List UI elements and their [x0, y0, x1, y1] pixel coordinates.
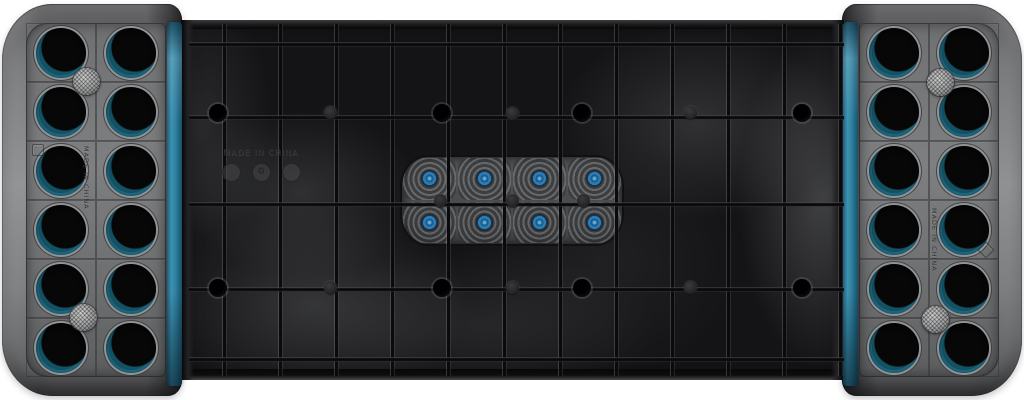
riser-socket: [939, 146, 989, 196]
rib-junction-nub: [506, 107, 519, 120]
screw-hole: [793, 279, 811, 297]
riser-socket: [106, 323, 156, 373]
riser-socket: [106, 264, 156, 314]
knurled-plug: [922, 306, 949, 333]
rib-junction-nub: [506, 194, 519, 207]
socket-cell: [96, 318, 166, 377]
teal-accent-stripe-left: [167, 22, 182, 386]
riser-socket: [869, 87, 919, 137]
screw-hole: [573, 104, 591, 122]
rib-junction-nub: [684, 281, 697, 294]
screw-hole: [433, 279, 451, 297]
origin-marking-block: MADE IN CHINA ♻: [215, 148, 307, 182]
riser-socket: [939, 264, 989, 314]
certification-stamp-row: ♻: [215, 163, 307, 182]
riser-socket: [106, 146, 156, 196]
riser-socket: [106, 205, 156, 255]
embossed-origin-text-center: MADE IN CHINA: [215, 148, 307, 157]
socket-cell: [96, 23, 166, 82]
rib-horizontal: [189, 357, 844, 362]
aerobic-step-underside-photo: MADE IN CHINA: [0, 0, 1024, 400]
socket-cell: [96, 141, 166, 200]
riser-socket: [869, 323, 919, 373]
socket-cell: [859, 200, 929, 259]
socket-cell: [96, 259, 166, 318]
riser-socket: [869, 28, 919, 78]
certification-stamp: [222, 163, 241, 182]
rib-junction-nub: [506, 281, 519, 294]
knurled-plug: [73, 68, 100, 95]
rib-junction-nub: [577, 194, 590, 207]
certification-stamp: [282, 163, 301, 182]
main-body-underside: MADE IN CHINA ♻: [181, 20, 844, 380]
riser-socket: [106, 87, 156, 137]
rib-junction-nub: [324, 106, 337, 119]
riser-socket: [869, 205, 919, 255]
socket-cell: [96, 82, 166, 141]
socket-cell: [859, 23, 929, 82]
embossed-origin-text-left: MADE IN CHINA: [82, 146, 90, 210]
screw-hole: [793, 104, 811, 122]
socket-cell: [859, 318, 929, 377]
socket-cell: [929, 141, 999, 200]
riser-socket: [36, 87, 86, 137]
riser-socket: [939, 323, 989, 373]
mold-stamp: [32, 144, 44, 156]
rib-junction-nub: [434, 194, 447, 207]
embossed-origin-text-right: MADE IN CHINA: [930, 208, 938, 272]
recycle-icon: ♻: [252, 163, 271, 182]
socket-cell: [96, 200, 166, 259]
left-end-cap: MADE IN CHINA: [2, 4, 182, 396]
socket-cell: [859, 141, 929, 200]
knurled-plug: [927, 69, 954, 96]
riser-socket: [869, 146, 919, 196]
step-platform: MADE IN CHINA: [0, 0, 1024, 400]
screw-hole: [209, 279, 227, 297]
screw-hole: [209, 104, 227, 122]
rib-horizontal: [189, 42, 844, 47]
socket-cell: [859, 259, 929, 318]
rib-junction-nub: [324, 281, 337, 294]
teal-accent-stripe-right: [843, 22, 858, 386]
screw-hole: [433, 104, 451, 122]
socket-cell: [859, 82, 929, 141]
knurled-plug: [70, 304, 97, 331]
riser-socket: [106, 28, 156, 78]
rib-junction-nub: [684, 106, 697, 119]
riser-socket: [36, 205, 86, 255]
riser-socket: [869, 264, 919, 314]
screw-hole: [573, 279, 591, 297]
right-end-cap: MADE IN CHINA: [842, 4, 1022, 396]
